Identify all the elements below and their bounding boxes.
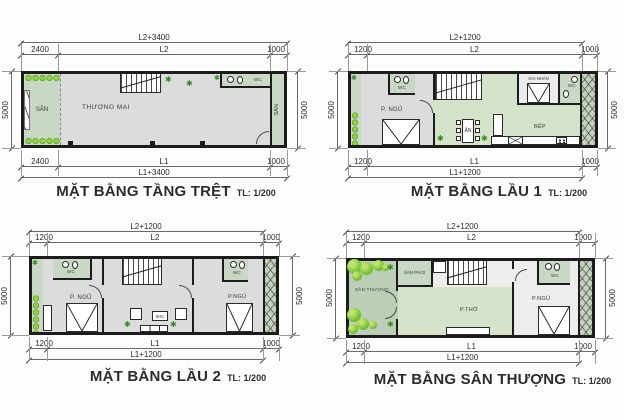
dim-label: 1000 xyxy=(256,234,286,242)
extension-line xyxy=(29,233,30,256)
extension-line xyxy=(270,44,271,71)
extension-line xyxy=(346,340,347,364)
dim-label: 1000 xyxy=(575,158,605,166)
dim-left: 5000 xyxy=(335,258,336,338)
dim-bottom-overall: L1+1200 xyxy=(348,177,582,178)
dim-bottom-overall: L1+1200 xyxy=(29,359,263,360)
dim-label: L2+3400 xyxy=(21,34,287,42)
extension-line xyxy=(364,233,365,258)
extension-line xyxy=(2,71,21,72)
washing-machine-icon xyxy=(508,136,523,145)
stair-run-line xyxy=(447,266,487,278)
folding-door-icon xyxy=(24,90,30,130)
dim-right: 5000 xyxy=(605,258,606,338)
room-wc-left: WC xyxy=(53,259,92,280)
hedge-icon xyxy=(25,137,60,145)
sink-icon xyxy=(403,76,409,84)
extension-line xyxy=(595,338,613,339)
room-label: SÂN xyxy=(36,107,48,113)
plant-icon xyxy=(437,135,444,143)
bed xyxy=(382,119,420,145)
toilet-icon xyxy=(237,76,243,84)
staircase xyxy=(120,74,161,93)
building-outline: SÂN THƯỢNG SÂN PHƠI P.THỜ WC xyxy=(346,258,595,338)
extension-line xyxy=(595,340,596,364)
extension-line xyxy=(279,233,280,256)
extension-line xyxy=(579,340,580,364)
dim-label: 5000 xyxy=(611,101,619,119)
plant-icon xyxy=(32,260,38,267)
extension-line xyxy=(2,256,29,257)
plant-icon xyxy=(124,321,131,329)
dim-label: L2 xyxy=(367,46,582,54)
dim-label: L1 xyxy=(367,158,582,166)
dim-label: 5000 xyxy=(328,101,336,119)
door-opening xyxy=(512,269,514,282)
room-label: SÂN PHƠI xyxy=(404,271,426,276)
toilet-icon xyxy=(554,263,560,271)
extension-line xyxy=(279,256,300,257)
room-label: WC xyxy=(398,86,406,91)
extension-line xyxy=(367,44,368,71)
dim-label: 2400 xyxy=(25,158,55,166)
extension-line xyxy=(2,148,21,149)
tree-icon xyxy=(352,271,362,281)
room-wc: WC xyxy=(537,261,570,285)
vent-shaft xyxy=(578,261,592,335)
bed xyxy=(226,303,253,332)
extension-line xyxy=(364,340,365,364)
hedge-icon xyxy=(32,295,40,332)
toilet-icon xyxy=(230,261,237,268)
room-label: WC xyxy=(233,271,241,276)
room-label: P.THỜ xyxy=(460,308,478,314)
room-label: WC xyxy=(551,274,559,279)
staircase xyxy=(122,259,162,285)
extension-line xyxy=(287,148,306,149)
stair-run-line xyxy=(120,76,161,89)
extension-line xyxy=(582,44,583,71)
dim-label: 1000 xyxy=(256,340,286,348)
dim-label: L2+1200 xyxy=(348,34,582,42)
dim-bottom-segments: 1200 L1 1000 xyxy=(29,348,279,349)
extension-line xyxy=(2,335,29,336)
chair xyxy=(475,120,480,125)
plant-icon xyxy=(351,75,357,82)
dim-label: 5000 xyxy=(609,289,617,307)
extension-line xyxy=(58,44,59,71)
dim-top-overall: L2+3400 xyxy=(21,42,287,43)
dim-label: 5000 xyxy=(296,287,304,305)
dim-top-segments: 2400 L2 1000 xyxy=(21,54,287,55)
room-label-p-ngu: P. NGỦ xyxy=(381,107,403,113)
extension-line xyxy=(287,71,306,72)
toilet-icon xyxy=(394,76,401,83)
dim-label: 5000 xyxy=(326,289,334,307)
plant-icon xyxy=(387,264,394,272)
dim-right: 5000 xyxy=(607,71,608,148)
tree-icon xyxy=(357,318,369,330)
dim-left: 5000 xyxy=(10,256,11,335)
extension-line xyxy=(287,44,288,71)
sofa xyxy=(140,325,168,332)
boundary-dashed-line xyxy=(60,74,61,145)
stair-run-line xyxy=(122,265,162,277)
dining-set: ĂN xyxy=(456,119,480,143)
extension-line xyxy=(597,150,598,176)
extension-line xyxy=(21,44,22,71)
dim-label: L2 xyxy=(364,234,579,242)
extension-line xyxy=(579,233,580,258)
storage-box xyxy=(433,261,446,273)
dim-label: L1+1200 xyxy=(346,354,579,362)
sink-icon xyxy=(239,261,245,269)
room-label: ĂN xyxy=(465,128,472,134)
sink-icon xyxy=(571,76,578,83)
dim-label: 5000 xyxy=(2,101,10,119)
armchair xyxy=(130,308,142,320)
dim-label: 5000 xyxy=(1,287,9,305)
pier xyxy=(150,141,155,145)
extension-line xyxy=(329,71,348,72)
dim-right: 5000 xyxy=(292,256,293,335)
room-label: SHC xyxy=(156,314,165,319)
staircase xyxy=(435,74,482,100)
door-swing-icon xyxy=(89,285,102,298)
extension-line xyxy=(47,337,48,361)
extension-line xyxy=(367,150,368,176)
plan-title-san-thuong: MẶT BẰNG SÂN THƯỢNG TL: 1/200 xyxy=(368,371,617,388)
extension-line xyxy=(279,335,300,336)
room-label-bep: BẾP xyxy=(534,125,546,131)
plan-scale-text: TL: 1/200 xyxy=(227,373,266,383)
dim-label: L1 xyxy=(47,340,263,348)
room-wc-right: WC xyxy=(558,74,580,105)
tree-icon xyxy=(369,321,377,329)
door-swing-icon xyxy=(515,269,527,281)
dim-bottom-overall: L1+1200 xyxy=(346,362,579,363)
extension-line xyxy=(58,150,59,176)
plant-icon xyxy=(170,321,177,329)
extension-line xyxy=(598,71,616,72)
extension-line xyxy=(279,337,280,361)
plan-title-text: MẶT BẰNG LẦU 2 xyxy=(90,368,221,385)
dim-top-segments: 1200 L2 1000 xyxy=(348,54,597,55)
dim-label: L1 xyxy=(364,343,579,351)
room-san-phoi: SÂN PHƠI xyxy=(398,261,433,287)
dim-bottom-segments: 1200 L1 1000 xyxy=(348,166,597,167)
tree-icon xyxy=(348,324,358,334)
dim-bottom-segments: 2400 L1 1000 xyxy=(21,166,287,167)
dim-label: 5000 xyxy=(301,101,309,119)
bed xyxy=(527,83,550,103)
dim-label: L1+3400 xyxy=(21,169,287,177)
room-label: WC xyxy=(254,78,262,83)
dim-top-segments: 1200 L2 1000 xyxy=(346,242,595,243)
extension-line xyxy=(287,150,288,176)
extension-line xyxy=(270,150,271,176)
staircase xyxy=(447,261,487,285)
extension-line xyxy=(329,148,348,149)
extension-line xyxy=(597,44,598,71)
room-label: SÂN xyxy=(275,104,281,115)
dim-label: 1000 xyxy=(568,343,598,351)
extension-line xyxy=(29,337,30,361)
hedge-icon xyxy=(351,112,359,145)
extension-line xyxy=(47,233,48,256)
extension-line xyxy=(595,233,596,258)
door-opening xyxy=(192,285,194,298)
pier xyxy=(200,141,205,145)
plan-title-lau-2: MẶT BẰNG LẦU 2 TL: 1/200 xyxy=(53,368,303,385)
plant-icon xyxy=(214,75,220,82)
plan-title-text: MẶT BẰNG SÂN THƯỢNG xyxy=(374,371,566,388)
chair xyxy=(475,128,480,133)
bed xyxy=(538,306,570,335)
chair xyxy=(456,136,461,141)
room-label-p-ngu-right: P.NGỦ xyxy=(228,295,246,301)
plant-icon xyxy=(165,76,172,84)
plan-title-lau-1: MẶT BẰNG LẦU 1 TL: 1/200 xyxy=(374,183,624,200)
plant-icon xyxy=(387,321,394,329)
plan-title-text: MẶT BẰNG LẦU 1 xyxy=(411,183,542,200)
dim-bottom-overall: L1+3400 xyxy=(21,177,287,178)
plan-scale-text: TL: 1/200 xyxy=(572,376,611,386)
kitchen-cabinet xyxy=(493,114,503,136)
dim-top-overall: L2+1200 xyxy=(348,42,582,43)
building-outline: WC P. NGỦ SHC xyxy=(29,256,279,335)
dim-top-segments: 1200 L2 1000 xyxy=(29,242,279,243)
room-label: GIA NHÂN xyxy=(528,77,549,81)
pier xyxy=(68,141,73,145)
dim-label: 1000 xyxy=(568,234,598,242)
extension-line xyxy=(348,44,349,71)
dim-label: 2400 xyxy=(25,46,55,54)
door-swing-icon xyxy=(420,100,433,113)
sink-icon xyxy=(72,261,78,269)
room-wc: WC xyxy=(220,74,270,88)
room-label: WC xyxy=(568,84,576,88)
stove-icon xyxy=(556,137,567,144)
room-label-san-thuong: SÂN THƯỢNG xyxy=(355,288,389,293)
dim-label: L2+1200 xyxy=(346,223,579,231)
toilet-icon xyxy=(62,261,69,268)
dim-top-overall: L2+1200 xyxy=(346,231,579,232)
plant-icon xyxy=(186,80,193,88)
dim-label: 1000 xyxy=(575,46,605,54)
extension-line xyxy=(598,148,616,149)
extension-line xyxy=(346,233,347,258)
floor-plan-sheet: L2+3400 2400 L2 1000 5000 5000 SÂN xyxy=(0,0,625,420)
dim-left: 5000 xyxy=(11,71,12,148)
dim-label: L2 xyxy=(47,234,263,242)
vent-shaft xyxy=(263,259,276,332)
dim-bottom-segments: 1200 L1 1000 xyxy=(346,351,595,352)
door-swing-icon xyxy=(256,131,269,144)
building-outline: WC P. NGỦ ĂN xyxy=(348,71,598,148)
dim-left: 5000 xyxy=(337,71,338,148)
extension-line xyxy=(582,150,583,176)
room-label-thuong-mai: THƯƠNG MẠI xyxy=(82,105,130,112)
plan-scale-text: TL: 1/200 xyxy=(237,188,276,198)
extension-line xyxy=(348,150,349,176)
dim-top-overall: L2+1200 xyxy=(29,231,263,232)
room-label: WC xyxy=(67,270,75,275)
wardrobe xyxy=(43,305,52,331)
door-swing-icon xyxy=(179,285,192,298)
dining-table: ĂN xyxy=(462,119,474,143)
plan-title-text: MẶT BẰNG TẦNG TRỆT xyxy=(56,183,230,200)
door-opening xyxy=(102,285,104,298)
room-san-right: SÂN xyxy=(270,74,284,145)
stair-run-line xyxy=(435,79,482,93)
extension-line xyxy=(595,258,613,259)
shc-table: SHC xyxy=(152,311,168,321)
sink-icon xyxy=(545,263,552,270)
building-outline: SÂN THƯƠNG MẠI WC SÂN xyxy=(21,71,287,148)
hedge-icon xyxy=(25,74,60,82)
extension-line xyxy=(327,338,346,339)
toilet-icon xyxy=(563,90,569,98)
extension-line xyxy=(21,150,22,176)
altar xyxy=(446,327,490,335)
plan-scale-text: TL: 1/200 xyxy=(548,188,587,198)
room-label-p-ngu: P.NGỦ xyxy=(532,297,550,303)
tree-icon xyxy=(360,262,373,275)
chair xyxy=(456,120,461,125)
dim-label: L2 xyxy=(58,46,270,54)
armchair xyxy=(175,308,187,320)
extension-line xyxy=(327,258,346,259)
extension-line xyxy=(263,233,264,256)
chair xyxy=(456,128,461,133)
dim-label: L1+1200 xyxy=(348,169,582,177)
bed xyxy=(66,303,98,332)
plan-title-tang-tret: MẶT BẰNG TẦNG TRỆT TL: 1/200 xyxy=(33,183,299,200)
plant-icon xyxy=(481,135,488,143)
chair xyxy=(475,136,480,141)
door-opening xyxy=(433,100,435,113)
sink-icon xyxy=(227,76,234,83)
room-wc-right: WC xyxy=(222,259,248,282)
room-wc-left: WC xyxy=(388,74,415,95)
dim-label: L2+1200 xyxy=(29,223,263,231)
extension-line xyxy=(263,337,264,361)
dim-label: L1+1200 xyxy=(29,351,263,359)
vent-shaft xyxy=(580,74,595,145)
dim-right: 5000 xyxy=(297,71,298,148)
dim-label: L1 xyxy=(58,158,270,166)
